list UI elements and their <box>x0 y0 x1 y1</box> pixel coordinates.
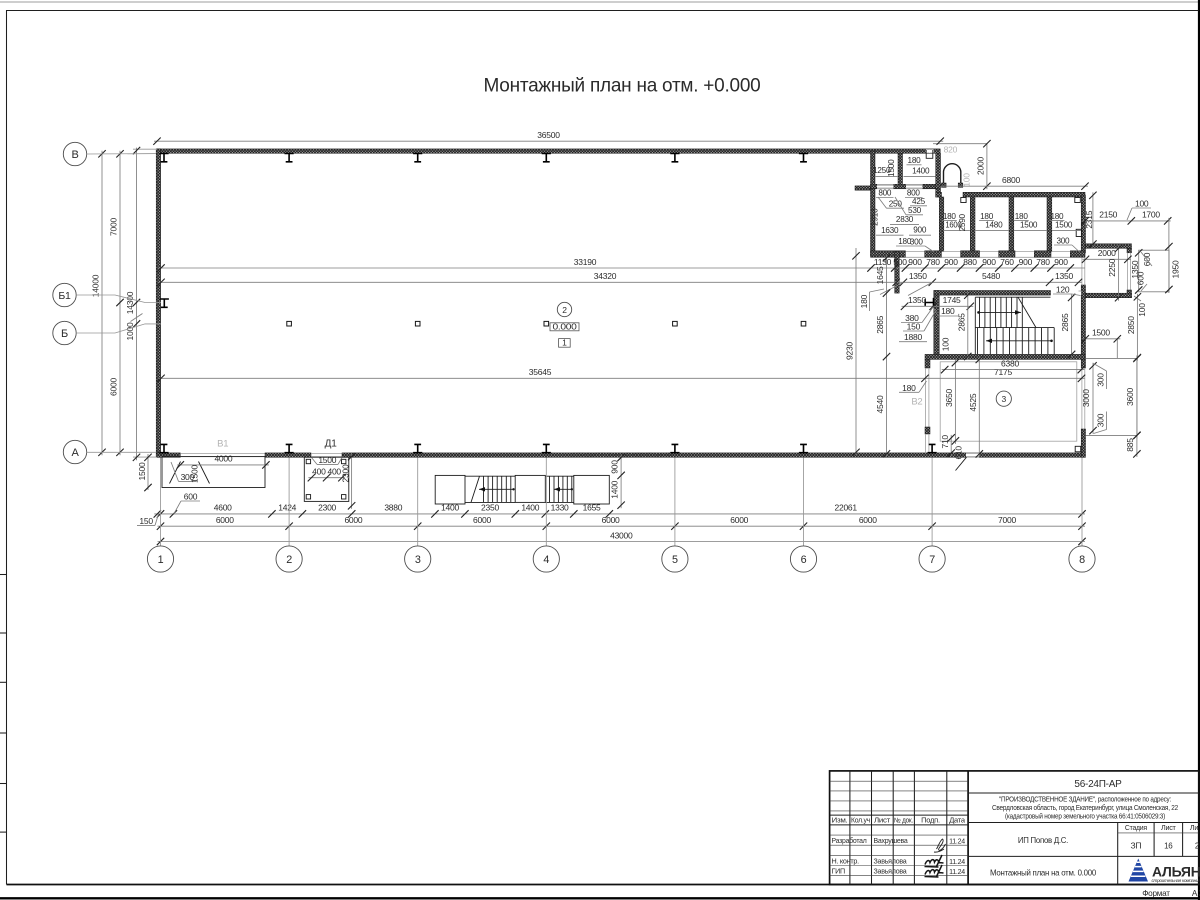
svg-text:300: 300 <box>1056 236 1070 245</box>
svg-text:3650: 3650 <box>944 389 954 407</box>
svg-text:180: 180 <box>980 212 994 221</box>
svg-text:Монтажный план на отм. 0.000: Монтажный план на отм. 0.000 <box>990 867 1097 877</box>
svg-text:4525: 4525 <box>968 393 978 411</box>
svg-text:7175: 7175 <box>994 367 1012 377</box>
svg-text:1330: 1330 <box>551 503 569 513</box>
svg-text:1500: 1500 <box>318 455 336 465</box>
svg-text:В1: В1 <box>217 438 228 449</box>
svg-text:5480: 5480 <box>982 271 1000 281</box>
svg-text:2830: 2830 <box>896 215 914 224</box>
svg-text:Разработал: Разработал <box>832 836 867 845</box>
svg-text:1480: 1480 <box>985 221 1003 230</box>
svg-text:2: 2 <box>562 305 567 315</box>
svg-text:Н. контр.: Н. контр. <box>832 857 860 866</box>
svg-text:180: 180 <box>902 383 916 393</box>
svg-text:180: 180 <box>1050 212 1064 221</box>
svg-text:1130: 1130 <box>874 257 892 267</box>
svg-text:6000: 6000 <box>602 515 620 525</box>
svg-text:9230: 9230 <box>845 342 855 360</box>
svg-text:Ли: Ли <box>1190 823 1198 832</box>
svg-text:2865: 2865 <box>875 315 885 333</box>
svg-text:1745: 1745 <box>943 295 961 305</box>
svg-text:4000: 4000 <box>214 454 232 464</box>
svg-text:1: 1 <box>562 338 567 348</box>
svg-text:1630: 1630 <box>881 226 899 235</box>
svg-text:"ПРОИЗВОДСТВЕННОЕ ЗДАНИЕ", рас: "ПРОИЗВОДСТВЕННОЕ ЗДАНИЕ", расположенное… <box>999 796 1171 803</box>
svg-text:1950: 1950 <box>1170 260 1180 278</box>
svg-text:В: В <box>71 149 78 161</box>
svg-text:6000: 6000 <box>730 515 748 525</box>
svg-text:2: 2 <box>286 554 292 566</box>
svg-text:600: 600 <box>1136 271 1146 285</box>
svg-text:2150: 2150 <box>1099 210 1117 220</box>
svg-text:22061: 22061 <box>835 503 858 513</box>
svg-text:2300: 2300 <box>340 464 350 482</box>
svg-text:Формат: Формат <box>1142 889 1170 898</box>
svg-text:Изм.: Изм. <box>832 815 848 824</box>
svg-text:1400: 1400 <box>521 503 539 513</box>
svg-text:11.24: 11.24 <box>949 869 965 876</box>
svg-text:Стадия: Стадия <box>1125 823 1147 832</box>
svg-text:11.24: 11.24 <box>949 839 965 846</box>
svg-text:100: 100 <box>941 337 951 351</box>
svg-text:ИП Попов Д.С.: ИП Попов Д.С. <box>1018 836 1068 845</box>
svg-text:СТРОИТЕЛЬНАЯ КОМПАНИЯ: СТРОИТЕЛЬНАЯ КОМПАНИЯ <box>572 451 673 460</box>
svg-text:6380: 6380 <box>1001 358 1019 368</box>
svg-text:610: 610 <box>954 446 964 460</box>
svg-text:Подп.: Подп. <box>921 815 940 824</box>
svg-text:6000: 6000 <box>216 515 234 525</box>
svg-text:6000: 6000 <box>344 515 362 525</box>
svg-text:36500: 36500 <box>537 130 560 140</box>
svg-text:1500: 1500 <box>1055 221 1073 230</box>
svg-text:760: 760 <box>1000 257 1014 267</box>
svg-text:2000: 2000 <box>975 157 985 175</box>
svg-text:150: 150 <box>907 322 921 332</box>
svg-text:400: 400 <box>327 467 341 477</box>
svg-text:180: 180 <box>943 212 957 221</box>
svg-text:6800: 6800 <box>1002 175 1020 185</box>
svg-text:4600: 4600 <box>214 503 232 513</box>
svg-text:2910: 2910 <box>870 208 879 226</box>
svg-text:530: 530 <box>908 206 922 215</box>
svg-text:180: 180 <box>908 156 922 165</box>
svg-text:900: 900 <box>1054 257 1068 267</box>
svg-text:800: 800 <box>907 188 921 197</box>
svg-text:900: 900 <box>1019 257 1033 267</box>
svg-text:1700: 1700 <box>1142 210 1160 220</box>
svg-text:7000: 7000 <box>998 515 1016 525</box>
svg-text:1880: 1880 <box>904 332 922 342</box>
svg-text:16: 16 <box>1164 842 1173 851</box>
svg-text:780: 780 <box>926 257 940 267</box>
svg-text:Завьялова: Завьялова <box>874 867 907 876</box>
svg-text:14300: 14300 <box>125 291 135 314</box>
svg-text:425: 425 <box>912 197 926 206</box>
svg-text:В2: В2 <box>911 397 922 408</box>
svg-text:300: 300 <box>910 237 924 246</box>
svg-text:2315: 2315 <box>1084 210 1094 228</box>
svg-text:№ док.: № док. <box>894 817 913 824</box>
svg-text:1500: 1500 <box>1092 327 1110 337</box>
svg-text:1350: 1350 <box>908 295 926 305</box>
svg-text:1500: 1500 <box>1020 221 1038 230</box>
svg-text:250: 250 <box>889 200 903 209</box>
svg-text:6000: 6000 <box>859 515 877 525</box>
svg-text:3880: 3880 <box>384 503 402 513</box>
svg-text:Б: Б <box>61 328 68 340</box>
svg-text:1350: 1350 <box>909 271 927 281</box>
svg-text:100: 100 <box>961 173 971 187</box>
svg-text:3600: 3600 <box>1125 388 1135 406</box>
svg-text:2000: 2000 <box>1098 248 1116 258</box>
svg-text:2300: 2300 <box>318 503 336 513</box>
svg-text:Завьялова: Завьялова <box>874 857 907 866</box>
svg-text:4540: 4540 <box>875 395 885 413</box>
svg-text:2850: 2850 <box>1126 316 1136 334</box>
svg-text:ГИП: ГИП <box>832 867 846 876</box>
svg-text:ЗП: ЗП <box>1131 841 1142 851</box>
svg-text:АЛЬЯНС: АЛЬЯНС <box>1152 864 1200 880</box>
svg-text:900: 900 <box>908 257 922 267</box>
svg-text:2350: 2350 <box>481 503 499 513</box>
svg-text:400: 400 <box>312 467 326 477</box>
svg-text:33190: 33190 <box>574 257 597 267</box>
svg-text:11.24: 11.24 <box>949 859 965 866</box>
svg-text:Д1: Д1 <box>325 438 338 449</box>
svg-text:120: 120 <box>1056 284 1070 294</box>
svg-text:150: 150 <box>139 516 153 526</box>
svg-text:100: 100 <box>1135 198 1149 208</box>
svg-text:56-24П-АР: 56-24П-АР <box>1074 779 1122 790</box>
svg-text:0.000: 0.000 <box>553 323 578 332</box>
svg-text:6: 6 <box>801 554 807 566</box>
svg-text:6000: 6000 <box>473 515 491 525</box>
svg-text:1500: 1500 <box>887 159 896 177</box>
svg-text:2250: 2250 <box>1107 258 1117 276</box>
svg-text:1500: 1500 <box>190 465 200 483</box>
svg-text:7000: 7000 <box>109 218 119 236</box>
svg-text:3000: 3000 <box>1081 389 1091 407</box>
svg-text:600: 600 <box>184 491 198 501</box>
svg-text:880: 880 <box>963 257 977 267</box>
svg-text:14000: 14000 <box>91 274 101 297</box>
svg-text:180: 180 <box>1015 212 1029 221</box>
svg-text:900: 900 <box>982 257 996 267</box>
svg-text:Б1: Б1 <box>58 290 71 302</box>
svg-text:710: 710 <box>940 435 950 449</box>
svg-text:А: А <box>71 447 79 459</box>
svg-text:Свердловская область, город Ек: Свердловская область, город Екатеринбург… <box>992 804 1178 812</box>
svg-text:885: 885 <box>1125 438 1135 452</box>
svg-text:2865: 2865 <box>1060 313 1070 331</box>
svg-text:34320: 34320 <box>594 271 617 281</box>
svg-text:1645: 1645 <box>875 266 885 284</box>
svg-text:820: 820 <box>944 145 958 155</box>
svg-text:3: 3 <box>1002 394 1007 404</box>
svg-text:Лист: Лист <box>874 815 891 824</box>
svg-text:300: 300 <box>1096 413 1106 427</box>
svg-text:4: 4 <box>543 554 549 566</box>
svg-text:А: А <box>1192 889 1198 898</box>
svg-text:900: 900 <box>610 460 620 474</box>
svg-text:Вахрушева: Вахрушева <box>874 836 908 845</box>
svg-text:100: 100 <box>1137 303 1147 317</box>
svg-text:(кадастровый номер земельного: (кадастровый номер земельного участка 66… <box>1005 813 1165 821</box>
svg-text:180: 180 <box>941 306 955 316</box>
svg-text:2590: 2590 <box>958 213 967 231</box>
svg-text:35645: 35645 <box>529 367 552 377</box>
svg-text:2865: 2865 <box>956 313 966 331</box>
svg-text:1350: 1350 <box>1055 271 1073 281</box>
svg-text:900: 900 <box>913 226 927 235</box>
svg-text:1400: 1400 <box>912 166 930 175</box>
svg-text:Лист: Лист <box>1161 823 1177 832</box>
svg-text:780: 780 <box>1036 257 1050 267</box>
svg-text:строительная компания: строительная компания <box>1152 878 1200 883</box>
svg-text:180: 180 <box>859 294 869 308</box>
svg-text:1400: 1400 <box>610 480 620 498</box>
svg-text:1655: 1655 <box>583 503 601 513</box>
svg-text:1424: 1424 <box>278 503 296 513</box>
svg-text:1500: 1500 <box>137 462 147 480</box>
svg-text:43000: 43000 <box>610 530 633 540</box>
svg-text:300: 300 <box>1096 373 1106 387</box>
svg-text:Монтажный план на отм. +0.000: Монтажный план на отм. +0.000 <box>484 74 761 96</box>
svg-text:900: 900 <box>944 257 958 267</box>
svg-text:800: 800 <box>878 188 892 197</box>
svg-text:7: 7 <box>929 554 935 566</box>
svg-text:Кол.уч: Кол.уч <box>851 817 871 824</box>
svg-text:6000: 6000 <box>109 378 119 396</box>
svg-text:1400: 1400 <box>441 503 459 513</box>
svg-text:1: 1 <box>158 554 164 566</box>
svg-text:3: 3 <box>415 554 421 566</box>
svg-text:500: 500 <box>893 257 907 267</box>
svg-text:Дата: Дата <box>949 815 966 824</box>
svg-text:1000: 1000 <box>125 322 135 340</box>
svg-text:8: 8 <box>1079 554 1085 566</box>
svg-text:5: 5 <box>672 554 678 566</box>
